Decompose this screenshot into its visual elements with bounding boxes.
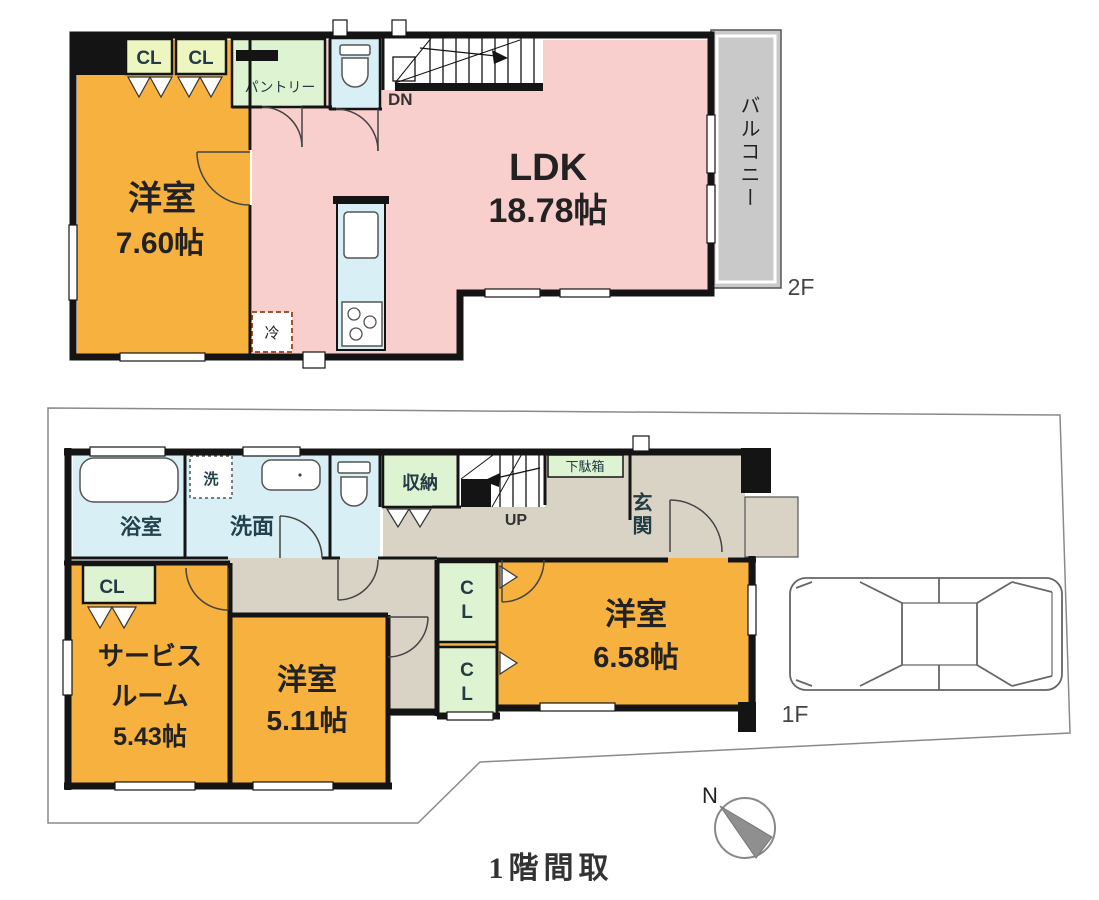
balcony: バルコニー [711, 30, 781, 288]
service-room-size: 5.43帖 [113, 723, 187, 751]
room-east-label: 洋室 [605, 597, 667, 632]
stairs-up-label: UP [505, 512, 528, 529]
room-center-label: 洋室 [277, 663, 337, 697]
sink-icon [262, 460, 320, 490]
service-room-label-2: ルーム [111, 681, 188, 711]
closet-a-label: CL [457, 578, 478, 626]
shoe-cabinet: 下駄箱 [548, 455, 623, 477]
bathroom: 浴室 [73, 452, 185, 558]
room-center-floor [230, 615, 388, 788]
closet-service-label: CL [99, 577, 125, 598]
ldk-label: LDK [509, 147, 588, 189]
bathroom-label: 浴室 [120, 515, 162, 539]
floorplan-image: バルコニー CL CL パントリー [0, 0, 1099, 900]
toilet-bowl-icon [342, 58, 368, 87]
entrance-porch [745, 497, 798, 557]
toilet-tank-icon-1f [338, 462, 370, 473]
fridge: 冷 [252, 312, 292, 352]
closet-b: CL [437, 647, 497, 715]
pantry-label: パントリー [245, 79, 316, 95]
stairs-down-label: DN [388, 90, 413, 109]
floor-2f-label: 2F [788, 274, 815, 300]
toilet-bowl-icon-1f [341, 477, 367, 506]
floor-1f-plan: 浴室 洗 洗面 収納 [48, 408, 1070, 823]
room-west-size: 7.60帖 [116, 227, 204, 260]
bathtub-icon [80, 458, 178, 502]
toilet-room-1f [330, 452, 380, 558]
toilet-tank-icon [340, 45, 370, 55]
room-west-label: 洋室 [128, 179, 196, 218]
wall-block-2f [73, 35, 125, 75]
closet-a: CL [437, 562, 497, 642]
shoe-cabinet-label: 下駄箱 [565, 459, 604, 474]
balcony-label: バルコニー [737, 95, 759, 210]
plan-caption: 1階間取 [489, 852, 614, 885]
stove-icon [342, 302, 382, 346]
closet-2-label: CL [188, 48, 214, 69]
floorplan-svg: バルコニー CL CL パントリー [0, 0, 1099, 900]
room-east-size: 6.58帖 [593, 641, 678, 674]
compass: N [702, 783, 775, 858]
car-top-view [790, 578, 1062, 690]
fridge-label: 冷 [264, 325, 279, 342]
service-room-label-1: サービス [98, 641, 202, 671]
room-center-size: 5.11帖 [267, 705, 348, 736]
floor-2f-plan: バルコニー CL CL パントリー [69, 20, 814, 368]
floor-1f-label: 1F [782, 701, 809, 727]
closet-1-label: CL [136, 48, 162, 69]
washroom: 洗 洗面 [185, 452, 330, 558]
closet-b-label: CL [457, 660, 478, 708]
kitchen-sink-icon [344, 212, 378, 258]
pantry: パントリー [232, 39, 325, 107]
storage-label: 収納 [402, 472, 438, 493]
toilet-room-2f [330, 38, 380, 109]
entrance-label: 玄関 [629, 491, 652, 538]
kitchen-counter [333, 196, 389, 350]
washroom-label: 洗面 [230, 514, 274, 539]
washer-label: 洗 [203, 470, 218, 488]
compass-north-label: N [702, 783, 718, 808]
ldk-size: 18.78帖 [488, 192, 607, 230]
